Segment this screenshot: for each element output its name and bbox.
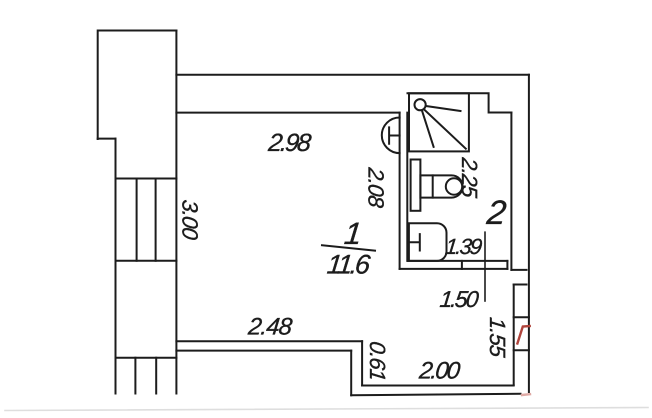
svg-text:1.39: 1.39: [444, 234, 483, 259]
svg-text:2.48: 2.48: [246, 314, 294, 341]
svg-text:2.08: 2.08: [364, 166, 389, 210]
svg-text:11.6: 11.6: [326, 249, 373, 280]
svg-text:1: 1: [343, 216, 364, 251]
svg-text:1.55: 1.55: [485, 316, 510, 359]
svg-text:2: 2: [484, 194, 508, 232]
svg-text:1.50: 1.50: [439, 286, 481, 312]
svg-text:2.98: 2.98: [266, 129, 313, 157]
svg-text:3.00: 3.00: [178, 199, 203, 242]
svg-text:2.25: 2.25: [457, 156, 482, 200]
svg-text:2.00: 2.00: [417, 358, 462, 385]
svg-text:0.61: 0.61: [365, 340, 390, 381]
